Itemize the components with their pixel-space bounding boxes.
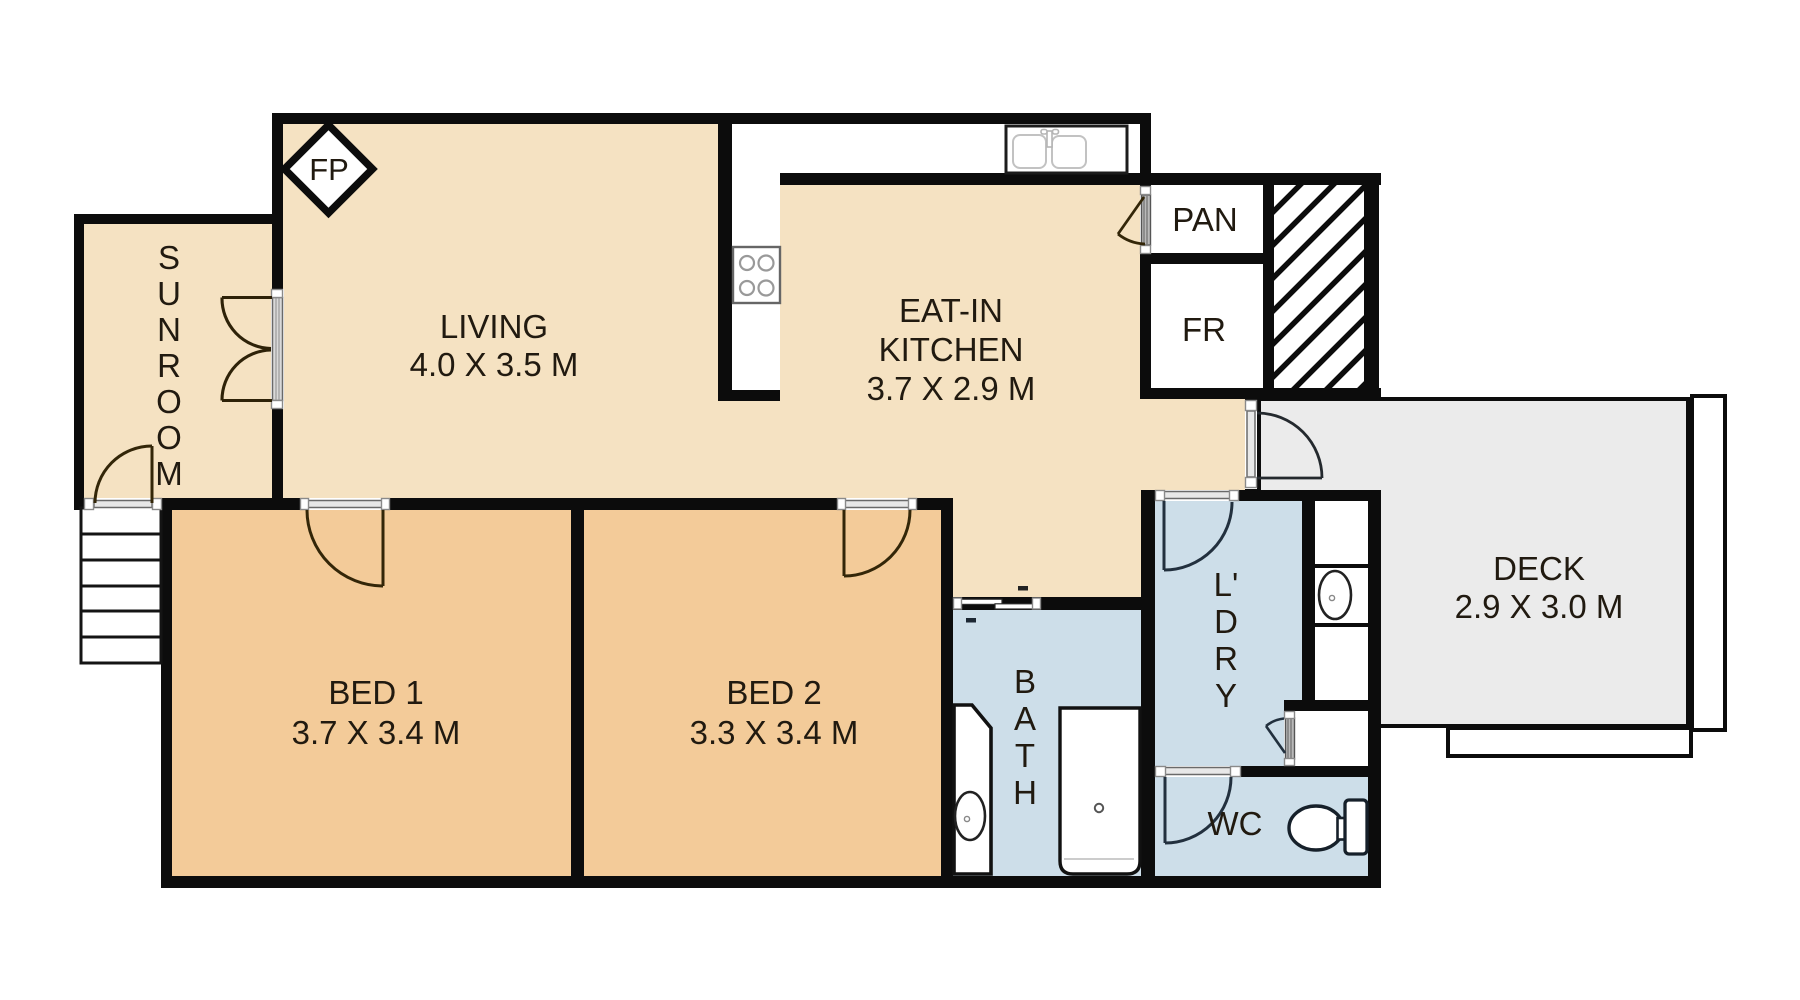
svg-text:H: H — [1013, 774, 1037, 811]
svg-text:KITCHEN: KITCHEN — [879, 331, 1024, 368]
svg-text:O: O — [156, 419, 182, 456]
svg-text:B: B — [1014, 663, 1036, 700]
svg-text:3.7 X 2.9 M: 3.7 X 2.9 M — [867, 370, 1036, 407]
svg-text:R: R — [157, 347, 181, 384]
svg-text:R: R — [1214, 640, 1238, 677]
svg-text:U: U — [157, 275, 181, 312]
svg-text:M: M — [155, 455, 183, 492]
svg-text:3.7 X 3.4 M: 3.7 X 3.4 M — [292, 714, 461, 751]
svg-text:FP: FP — [309, 152, 349, 187]
svg-text:A: A — [1014, 700, 1036, 737]
svg-text:LIVING: LIVING — [440, 308, 548, 345]
svg-text:WC: WC — [1208, 805, 1263, 842]
svg-text:BED 1: BED 1 — [328, 674, 423, 711]
svg-text:DECK: DECK — [1493, 550, 1585, 587]
svg-text:S: S — [158, 239, 180, 276]
svg-text:BED 2: BED 2 — [726, 674, 821, 711]
svg-text:EAT-IN: EAT-IN — [899, 292, 1003, 329]
svg-text:PAN: PAN — [1172, 201, 1237, 238]
svg-text:D: D — [1214, 603, 1238, 640]
svg-text:2.9 X 3.0 M: 2.9 X 3.0 M — [1455, 588, 1624, 625]
svg-text:N: N — [157, 311, 181, 348]
svg-text:L': L' — [1214, 566, 1239, 603]
svg-text:T: T — [1015, 737, 1035, 774]
svg-text:Y: Y — [1215, 677, 1237, 714]
svg-text:4.0 X 3.5 M: 4.0 X 3.5 M — [410, 346, 579, 383]
svg-text:3.3 X 3.4 M: 3.3 X 3.4 M — [690, 714, 859, 751]
svg-text:O: O — [156, 383, 182, 420]
svg-text:FR: FR — [1182, 311, 1226, 348]
